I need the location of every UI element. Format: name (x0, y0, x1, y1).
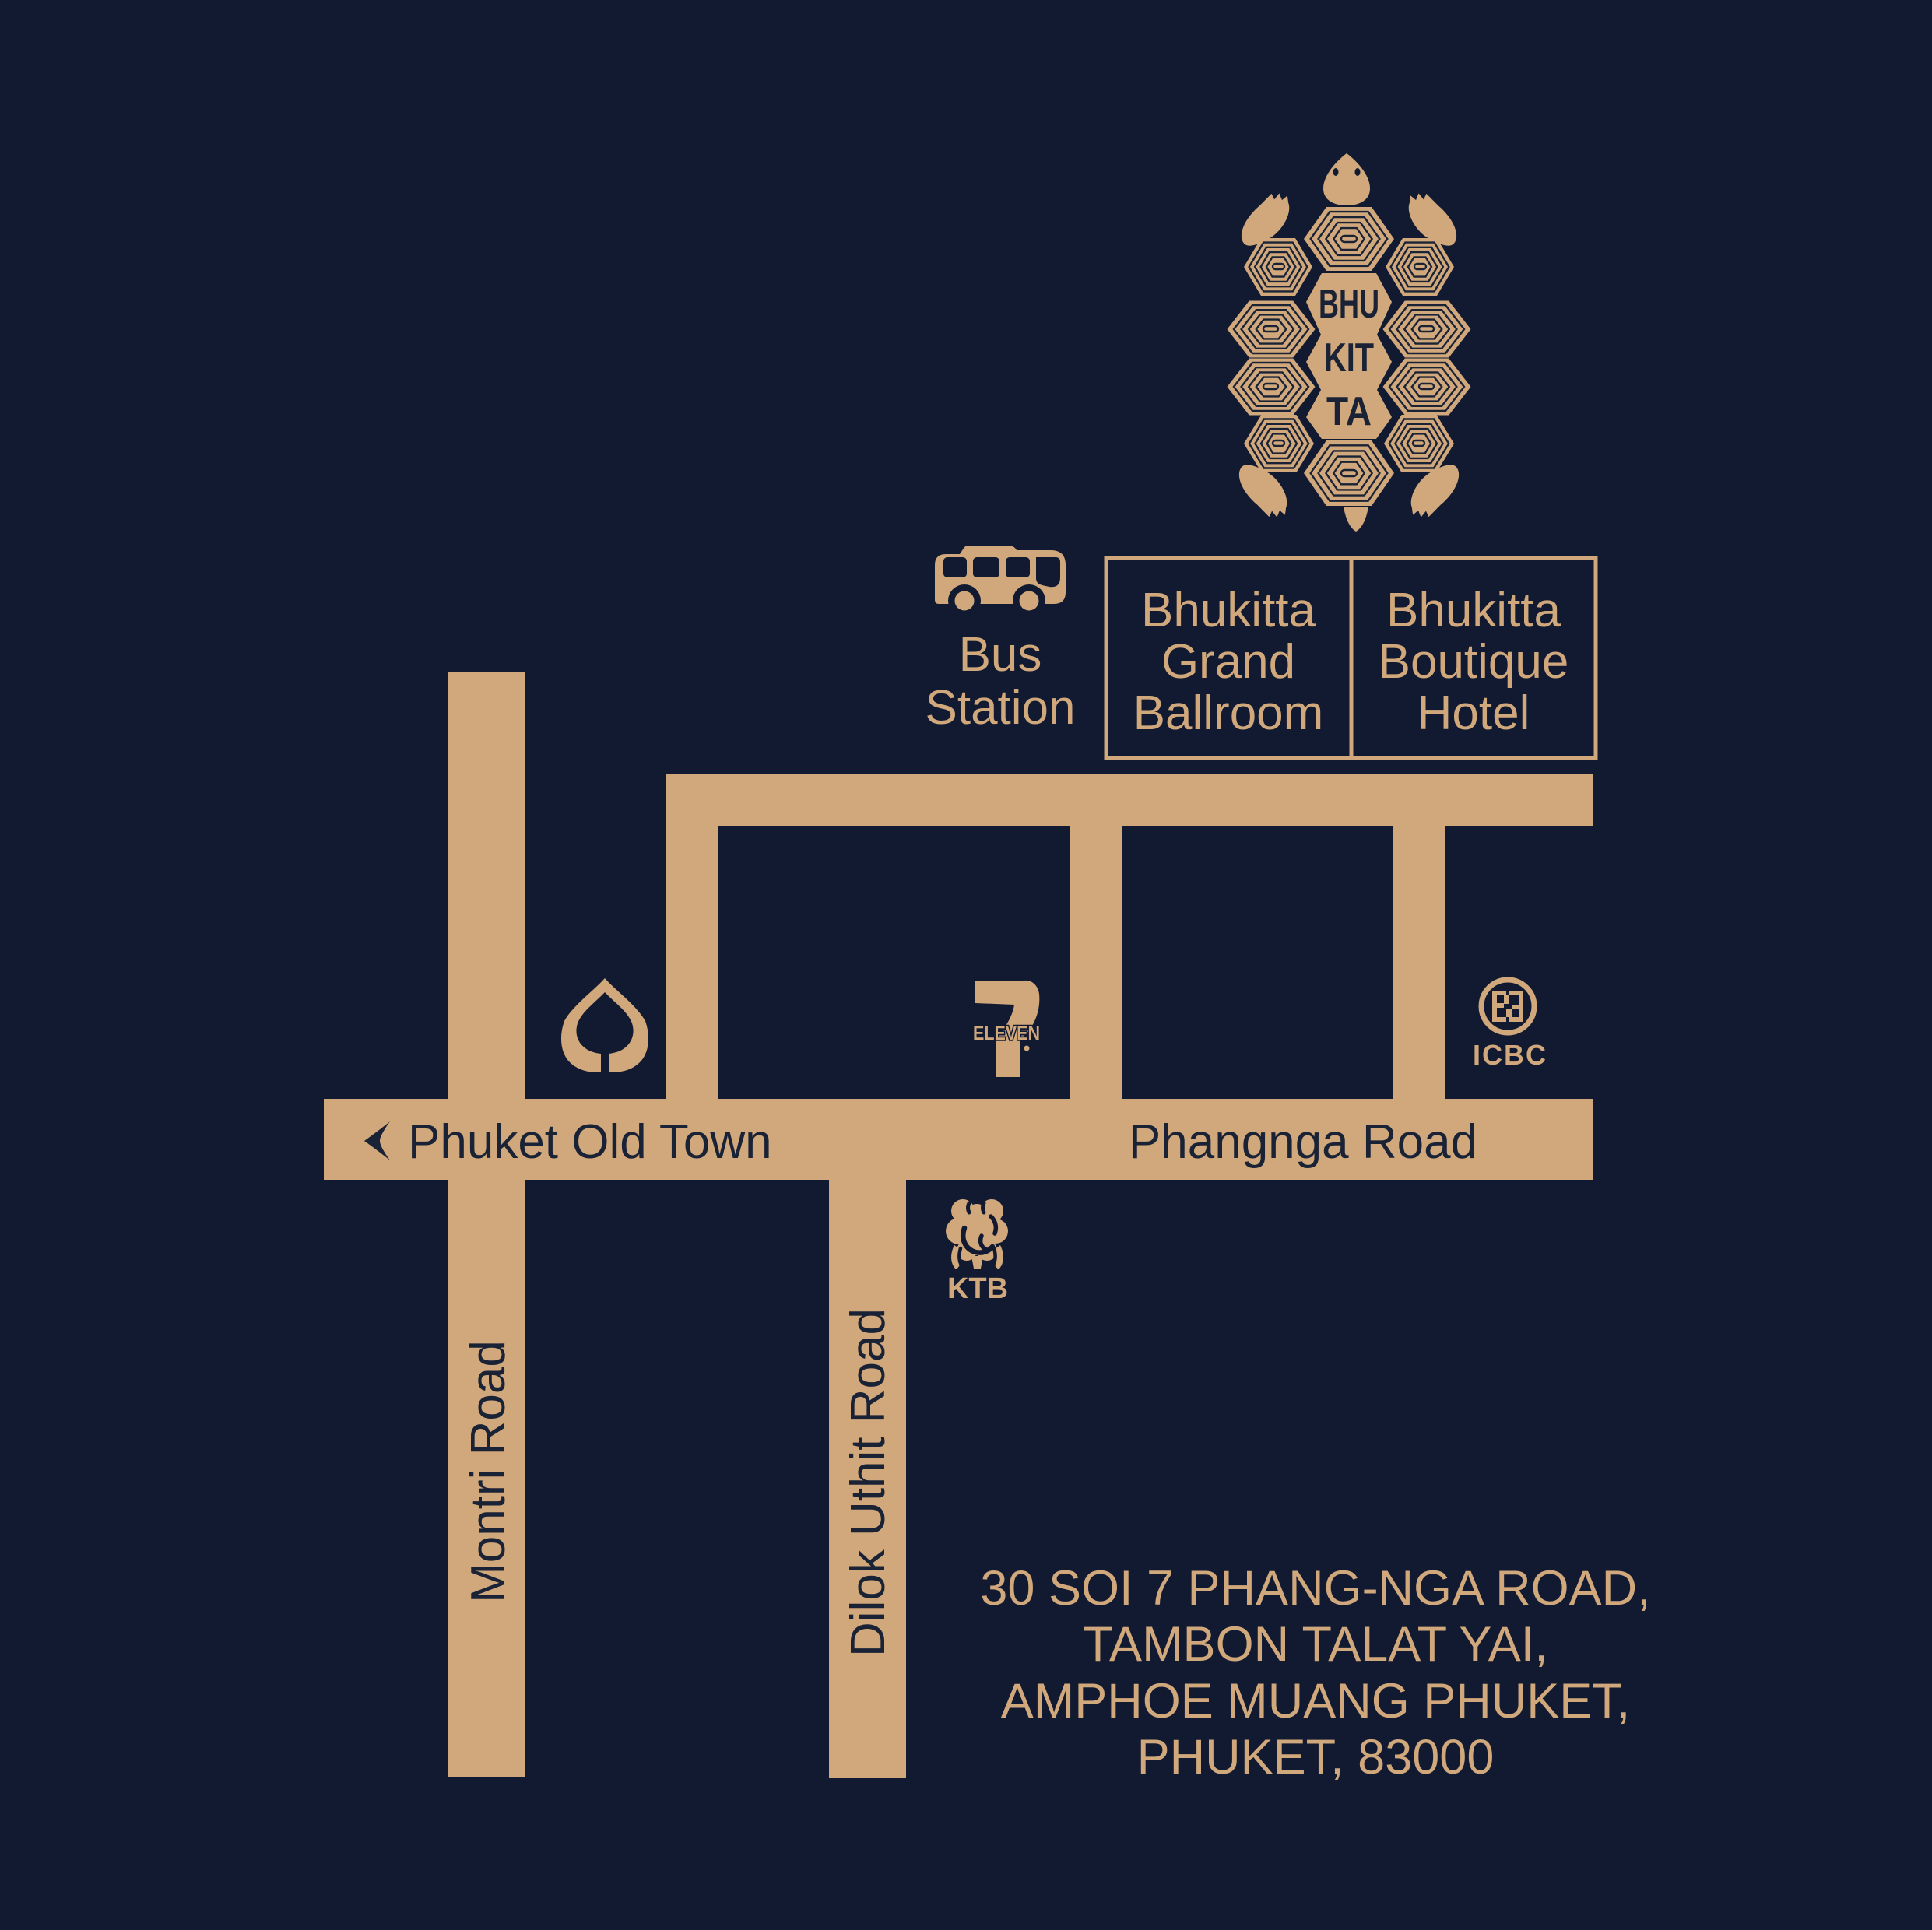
svg-text:TAMBON TALAT YAI,: TAMBON TALAT YAI, (1083, 1617, 1548, 1672)
svg-text:Bus: Bus (959, 628, 1042, 682)
svg-text:Station: Station (925, 681, 1075, 735)
svg-text:TA: TA (1326, 389, 1372, 434)
svg-text:Phuket Old Town: Phuket Old Town (408, 1115, 772, 1169)
svg-text:Hotel: Hotel (1417, 686, 1530, 740)
svg-text:Ballroom: Ballroom (1133, 686, 1324, 740)
svg-text:AMPHOE MUANG PHUKET,: AMPHOE MUANG PHUKET, (1001, 1674, 1631, 1728)
svg-text:Grand: Grand (1161, 635, 1295, 689)
svg-text:30 SOI 7 PHANG-NGA ROAD,: 30 SOI 7 PHANG-NGA ROAD, (980, 1561, 1650, 1616)
svg-text:KIT: KIT (1324, 335, 1374, 381)
svg-text:Bhukitta: Bhukitta (1386, 584, 1561, 637)
svg-text:Bhukitta: Bhukitta (1141, 584, 1316, 637)
svg-text:KTB: KTB (947, 1272, 1008, 1305)
svg-text:ICBC: ICBC (1473, 1039, 1547, 1071)
svg-text:Boutique: Boutique (1379, 635, 1569, 689)
svg-text:BHU: BHU (1319, 282, 1379, 327)
svg-text:Dilok Uthit Road: Dilok Uthit Road (841, 1308, 895, 1657)
svg-text:ELEVEN: ELEVEN (973, 1023, 1040, 1044)
svg-text:Montri Road: Montri Road (462, 1340, 515, 1603)
svg-text:Phangnga Road: Phangnga Road (1129, 1115, 1477, 1169)
svg-text:PHUKET, 83000: PHUKET, 83000 (1137, 1730, 1495, 1784)
